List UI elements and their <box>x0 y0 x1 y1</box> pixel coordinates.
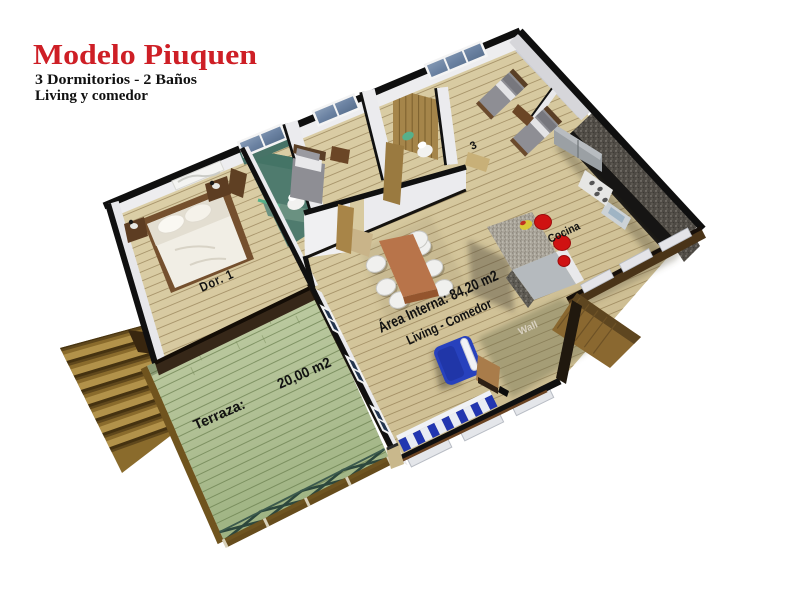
svg-text:3 Dormitorios - 2 Baños: 3 Dormitorios - 2 Baños <box>35 72 197 88</box>
svg-text:Living y comedor: Living y comedor <box>35 88 149 104</box>
svg-text:Modelo Piuquen: Modelo Piuquen <box>33 39 257 71</box>
